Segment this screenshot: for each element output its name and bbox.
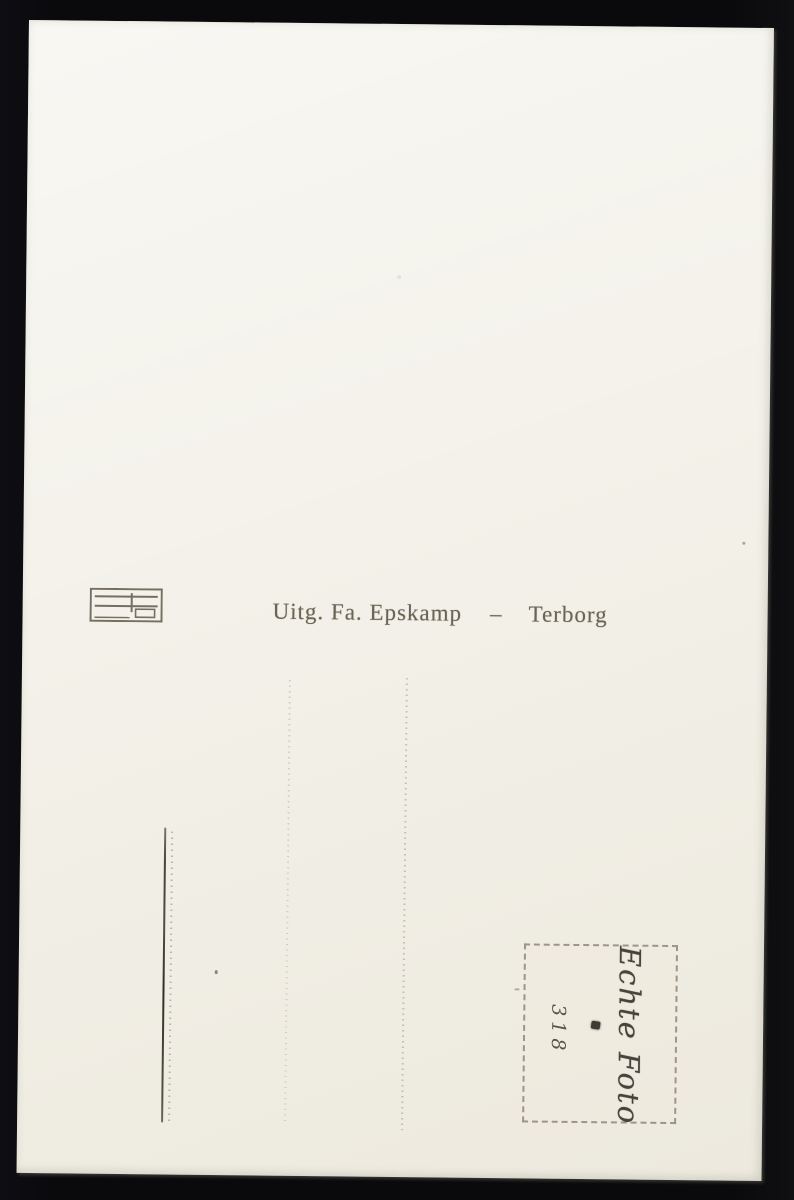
paper-speck	[742, 542, 745, 545]
publisher-logo-icon	[89, 588, 162, 623]
publisher-city: Terborg	[528, 601, 607, 627]
publisher-imprint-line: Uitg. Fa. Epskamp–Terborg	[272, 598, 607, 630]
stamp-number-text: 318	[547, 1004, 570, 1056]
address-divider-line-1	[284, 680, 291, 1125]
imprint-separator: –	[490, 601, 503, 626]
stamp-box: Echte Foto 318	[522, 943, 678, 1124]
paper-speck	[215, 970, 218, 974]
paper-speck	[397, 275, 401, 279]
stamp-brand-text: Echte Foto	[611, 946, 647, 1126]
publisher-name: Uitg. Fa. Epskamp	[272, 599, 462, 626]
scan-background: Uitg. Fa. Epskamp–Terborg Echte Foto 318	[0, 0, 794, 1200]
paper-speck	[515, 988, 520, 990]
ink-smudge-mark	[591, 1021, 601, 1030]
address-divider-line-2	[401, 678, 408, 1130]
vertical-dotted-companion-line	[168, 832, 173, 1125]
vertical-ink-line	[161, 828, 166, 1123]
postcard-back: Uitg. Fa. Epskamp–Terborg Echte Foto 318	[17, 20, 774, 1181]
